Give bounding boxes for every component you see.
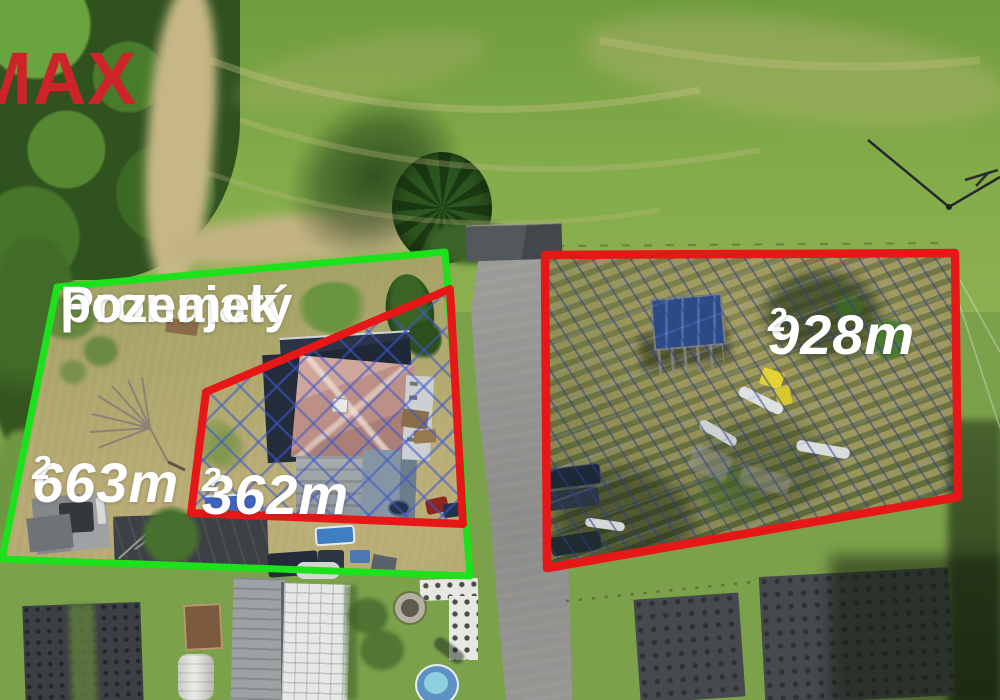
- red-parcel-outline-right: [545, 253, 958, 568]
- superscript: 2: [202, 462, 222, 500]
- superscript: 2: [32, 450, 52, 488]
- title-line-2: pozemek: [60, 276, 278, 333]
- remax-logo-text: MAX: [0, 36, 137, 121]
- aerial-photo-listing: MAX Pronajatý pozemek 663m2 362m2 928m2: [0, 0, 1000, 700]
- superscript: 2: [768, 302, 788, 340]
